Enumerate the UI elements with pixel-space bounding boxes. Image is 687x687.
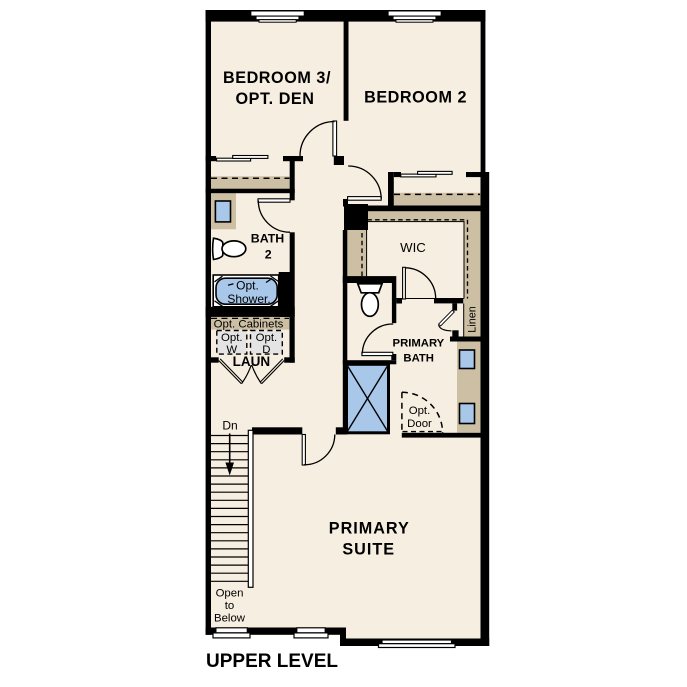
svg-text:OPT. DEN: OPT. DEN <box>235 90 314 108</box>
svg-text:PRIMARY: PRIMARY <box>329 519 410 537</box>
svg-text:Linen: Linen <box>467 306 479 332</box>
svg-text:Dn: Dn <box>222 419 237 433</box>
svg-text:SUITE: SUITE <box>342 540 395 558</box>
svg-text:Opt.: Opt. <box>236 279 259 293</box>
svg-text:Opt.: Opt. <box>409 405 431 417</box>
svg-text:BATH: BATH <box>251 231 285 245</box>
svg-text:2: 2 <box>265 247 272 261</box>
svg-text:UPPER LEVEL: UPPER LEVEL <box>206 651 338 672</box>
svg-text:BEDROOM 3/: BEDROOM 3/ <box>223 69 331 87</box>
svg-text:to: to <box>225 600 235 612</box>
svg-text:BEDROOM 2: BEDROOM 2 <box>364 89 467 107</box>
svg-text:WIC: WIC <box>400 240 426 255</box>
svg-text:Open: Open <box>216 588 244 600</box>
svg-text:Below: Below <box>214 613 246 625</box>
svg-text:PRIMARY: PRIMARY <box>393 338 445 350</box>
svg-text:Opt.: Opt. <box>221 332 243 344</box>
svg-text:Opt.: Opt. <box>256 332 278 344</box>
svg-text:LAUN: LAUN <box>233 354 271 369</box>
svg-text:Opt. Cabinets: Opt. Cabinets <box>214 319 284 331</box>
svg-text:BATH: BATH <box>403 353 434 365</box>
svg-text:Door: Door <box>407 418 432 430</box>
svg-text:Shower.: Shower. <box>227 292 270 306</box>
